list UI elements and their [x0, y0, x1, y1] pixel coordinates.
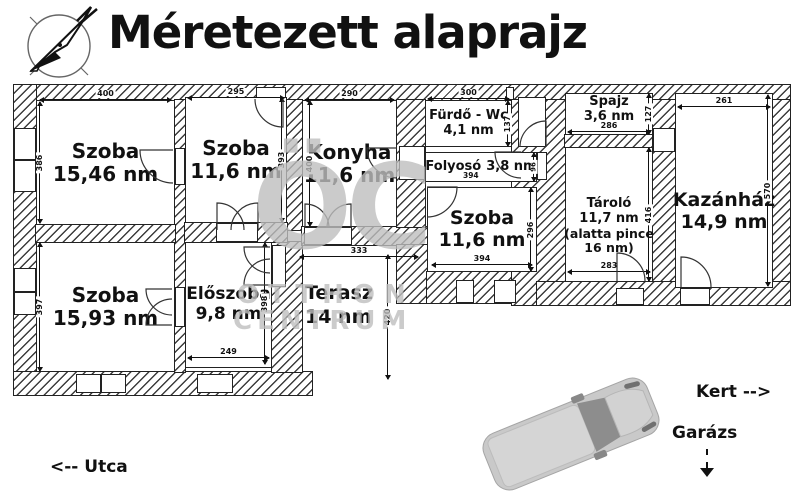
page-title: Méretezett alaprajz: [108, 6, 587, 59]
window-opening: [14, 268, 36, 292]
dimension: 261: [678, 97, 770, 109]
window-opening: [494, 280, 516, 303]
garage-label: Garázs: [672, 423, 737, 443]
room-area: 11,6 nm: [190, 160, 281, 183]
dimension: 394: [463, 171, 479, 180]
dimension: 398: [259, 243, 271, 364]
wall-band-1: [36, 225, 175, 242]
room-name: Tároló: [587, 197, 632, 212]
window-opening: [456, 280, 474, 303]
room-area: 11,6 nm: [439, 230, 526, 252]
door-opening: [216, 223, 258, 242]
garage-arrow-head-icon: [700, 468, 714, 484]
dimension: 400: [304, 101, 316, 226]
window-opening: [197, 374, 233, 393]
window-opening: [76, 374, 101, 393]
room-area: 9,8 nm: [196, 305, 262, 325]
room-area: 14 nm: [305, 306, 373, 330]
room-name: Terasz: [305, 282, 373, 306]
door-opening: [399, 146, 425, 180]
dimension: 249: [188, 348, 269, 360]
room-furdo-wc: Fürdő - Wc4,1 nm: [425, 100, 512, 147]
dimension: 400: [40, 90, 171, 102]
van-top-view-icon: [476, 369, 667, 499]
wall-mid-2: [287, 100, 302, 230]
room-szoba-1: Szoba15,46 nm: [36, 100, 175, 225]
compass-north-icon: [14, 4, 102, 86]
dimension: 386: [34, 102, 46, 223]
room-name: Kazánház: [673, 190, 775, 212]
room-area: 14,9 nm: [681, 212, 768, 234]
room-name: Szoba: [202, 137, 270, 160]
garage-direction-arrow: [706, 449, 708, 468]
door-opening: [304, 227, 352, 245]
dimension: 333: [300, 247, 418, 259]
room-area: 11,7 nm: [579, 212, 638, 227]
dimension: 283: [568, 262, 650, 274]
door-opening: [175, 148, 185, 185]
dimension: 570: [762, 95, 774, 286]
dimension: 300: [428, 89, 509, 101]
dimension: 416: [643, 148, 655, 281]
dimension: 286: [568, 122, 650, 134]
room-name: Spajz: [589, 95, 628, 110]
dimension: 96: [528, 153, 540, 181]
wall-bottom-left: [14, 372, 312, 395]
dimension: 296: [525, 188, 537, 271]
dimension: 137: [502, 101, 514, 146]
wall-right: [773, 100, 790, 305]
wall-pantry-bottom: [565, 135, 653, 147]
room-name: Fürdő - Wc: [429, 109, 508, 124]
dimension: 127: [643, 94, 655, 134]
door-opening: [680, 288, 710, 305]
room-area: 11,6 nm: [304, 164, 395, 187]
dimension: 420: [382, 255, 394, 379]
window-opening: [14, 160, 36, 192]
room-area: 4,1 nm: [443, 124, 493, 139]
dimension: 393: [276, 98, 288, 222]
window-opening: [14, 128, 36, 160]
room-name: Szoba: [72, 284, 140, 307]
dimension: 290: [305, 90, 394, 102]
room-name: Szoba: [450, 208, 514, 230]
window-opening: [14, 292, 36, 315]
dimension: 394: [432, 255, 532, 267]
room-szoba-4: Szoba15,93 nm: [36, 242, 175, 372]
floor-plan-page: Méretezett alaprajz Szoba15,46 nm Szoba1…: [0, 0, 800, 501]
room-name: Konyha: [308, 141, 392, 164]
door-opening: [616, 288, 644, 305]
room-konyha: Konyha11,6 nm: [302, 100, 397, 227]
street-label: <-- Utca: [50, 457, 128, 477]
dimension: 397: [34, 243, 46, 371]
room-closet: [518, 97, 546, 147]
wall-mid-1: [175, 100, 185, 372]
door-opening: [272, 245, 286, 287]
room-kazanhaz: Kazánház14,9 nm: [675, 93, 773, 288]
room-name: Szoba: [72, 140, 140, 163]
door-opening: [653, 128, 675, 152]
room-szoba-2: Szoba11,6 nm: [185, 97, 287, 223]
room-area: 15,46 nm: [53, 163, 158, 186]
area-terasz: Terasz 14 nm: [305, 282, 373, 330]
garden-label: Kert -->: [696, 382, 771, 402]
window-opening: [101, 374, 126, 393]
door-opening: [175, 287, 185, 327]
dimension: 295: [188, 88, 284, 100]
room-area: 15,93 nm: [53, 307, 158, 330]
room-folyoso: Folyosó3,8 nm: [425, 152, 537, 182]
